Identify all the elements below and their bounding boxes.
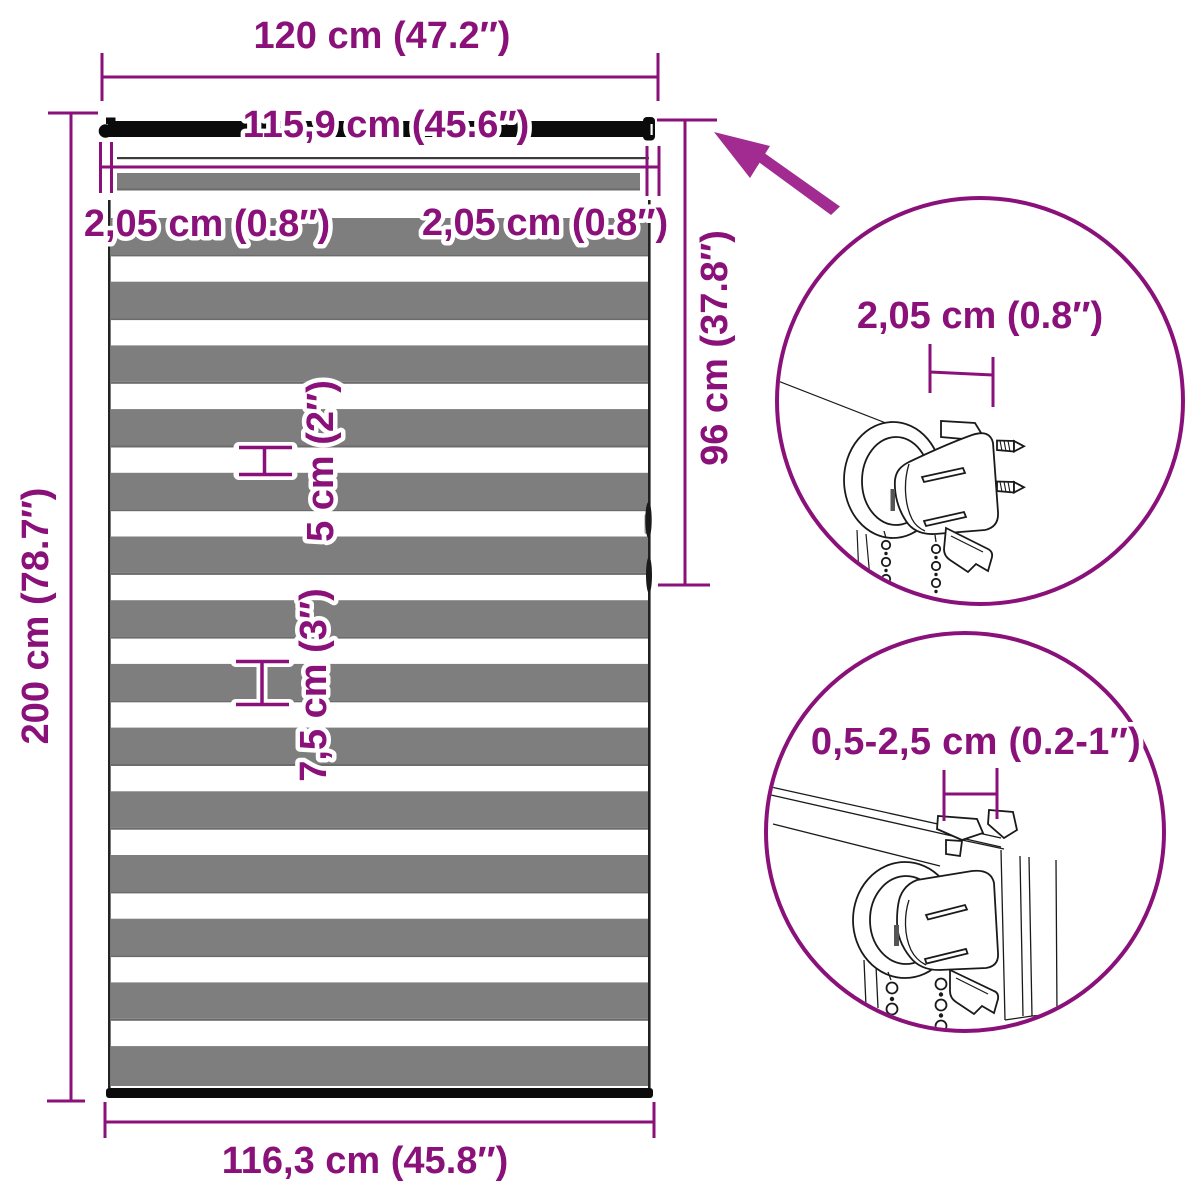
svg-text:2,05 cm (0.8″): 2,05 cm (0.8″) [84,203,330,245]
svg-text:116,3 cm (45.8″): 116,3 cm (45.8″) [222,1140,509,1182]
svg-text:0,5-2,5 cm (0.2-1″): 0,5-2,5 cm (0.2-1″) [811,721,1141,763]
svg-text:120 cm (47.2″): 120 cm (47.2″) [254,15,511,57]
svg-text:2,05 cm (0.8″): 2,05 cm (0.8″) [857,295,1103,337]
svg-text:96 cm (37.8″): 96 cm (37.8″) [694,230,736,466]
svg-text:200 cm (78.7″): 200 cm (78.7″) [15,488,57,745]
svg-text:2,05 cm (0.8″): 2,05 cm (0.8″) [422,202,668,244]
svg-text:7,5 cm (3″): 7,5 cm (3″) [293,588,335,782]
svg-text:115,9 cm (45.6″): 115,9 cm (45.6″) [243,104,530,146]
svg-text:5 cm (2″): 5 cm (2″) [300,380,342,542]
